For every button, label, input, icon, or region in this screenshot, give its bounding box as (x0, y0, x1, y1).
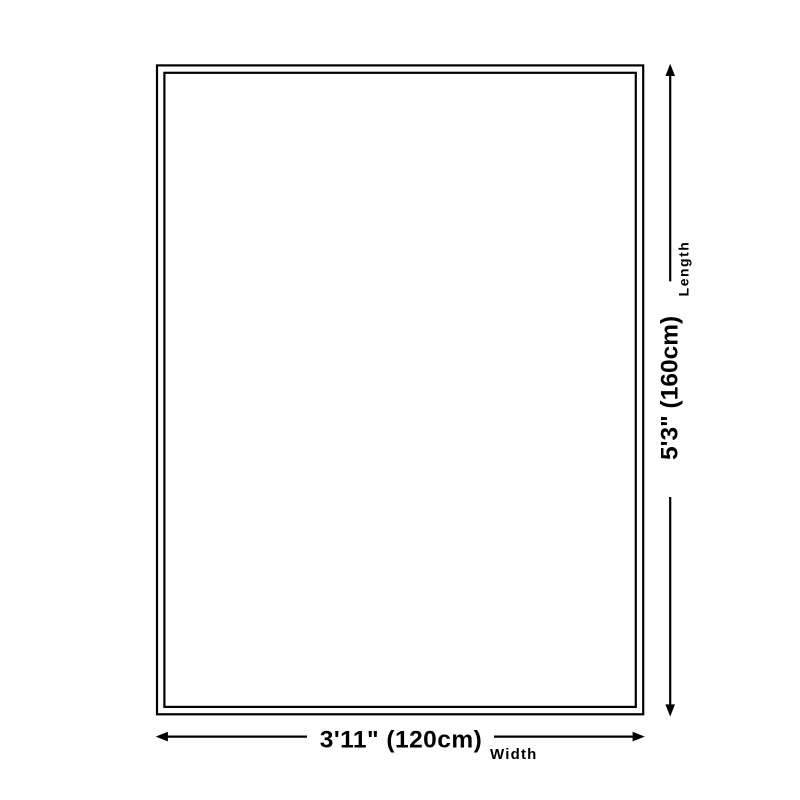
svg-text:Length: Length (676, 241, 692, 297)
svg-text:3'11" (120cm): 3'11" (120cm) (320, 727, 483, 754)
svg-text:Width: Width (490, 746, 538, 763)
svg-text:5'3" (160cm): 5'3" (160cm) (656, 316, 683, 460)
